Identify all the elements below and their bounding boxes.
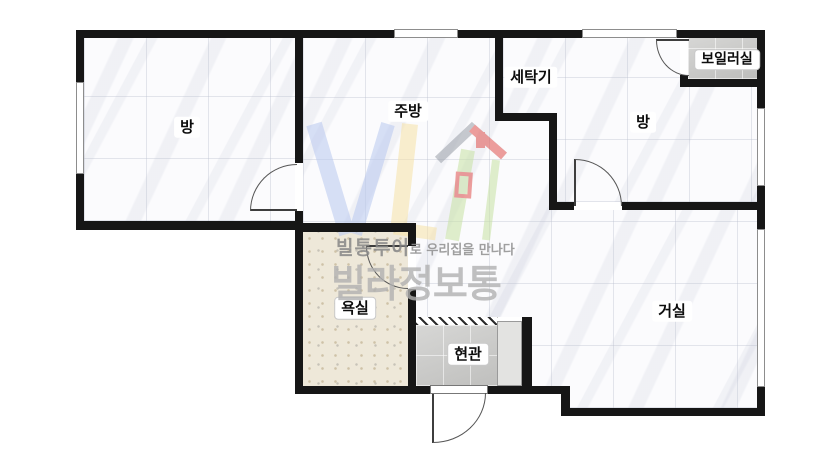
window-top-kitchen	[394, 29, 458, 38]
bathroom-door-gap	[408, 246, 416, 289]
floorplan-canvas: 방 주방 세탁기 방 보일러실 욕실 현관 거실 빌통투어로 우리집을 만나다 …	[0, 0, 840, 472]
window-top-bedroom-right	[582, 29, 677, 38]
room-label-bathroom: 욕실	[335, 298, 375, 319]
laundry-wall-horizontal	[495, 113, 557, 121]
room-label-entrance: 현관	[448, 344, 488, 365]
window-right-bedroom	[757, 108, 765, 186]
laundry-wall-vertical-lower	[549, 113, 557, 210]
entrance-threshold	[416, 317, 498, 325]
entrance-shoe-cabinet	[497, 321, 522, 386]
room-label-bedroom-left: 방	[174, 117, 200, 138]
front-door-arc	[433, 393, 486, 443]
laundry-wall-vertical-upper	[495, 30, 503, 121]
room-label-bedroom-right: 방	[630, 112, 656, 133]
bedroom-left-bottom-wall	[76, 221, 303, 230]
room-label-boiler: 보일러실	[695, 50, 759, 69]
living-bottom-wall	[561, 408, 765, 416]
bathroom-top-wall	[295, 223, 416, 232]
boiler-bottom-wall	[680, 79, 765, 87]
room-label-living: 거실	[652, 301, 692, 322]
room-label-kitchen: 주방	[388, 101, 428, 122]
room-label-laundry: 세탁기	[504, 67, 557, 88]
entrance-right-wall	[522, 317, 532, 394]
window-left-bedroom	[76, 82, 84, 174]
window-right-living	[757, 229, 765, 387]
